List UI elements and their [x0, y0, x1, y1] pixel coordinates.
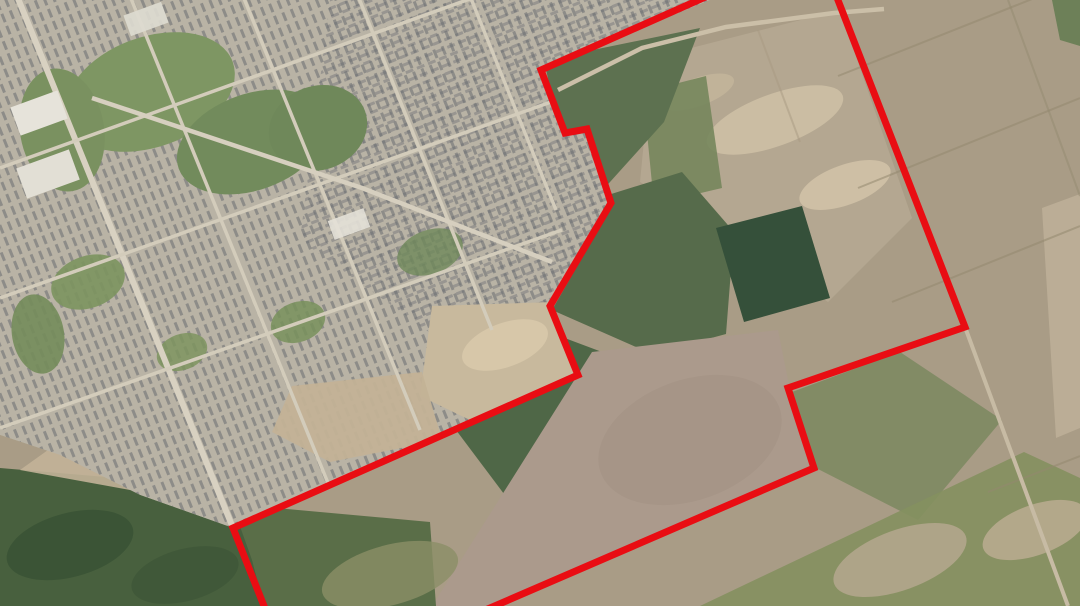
map-svg — [0, 0, 1080, 606]
satellite-map-view — [0, 0, 1080, 606]
